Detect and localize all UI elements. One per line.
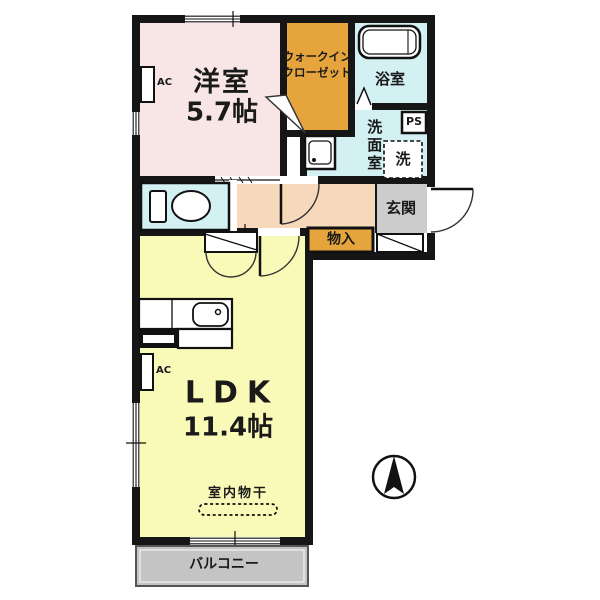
- kitchen-sink-icon: [193, 303, 228, 326]
- ldk-label: LDK: [185, 377, 279, 410]
- bedroom-label: 洋室: [193, 68, 251, 98]
- toilet-tank-icon: [150, 191, 166, 222]
- washbasin-icon: [305, 136, 335, 169]
- toilet-bowl-icon: [172, 191, 210, 221]
- washroom-door-opening: [280, 176, 318, 184]
- ldk-door-opening: [258, 228, 300, 236]
- bath-label: 浴室: [375, 71, 405, 88]
- floor-plan-drawing: [0, 0, 600, 600]
- wic-label-line1: ウォークイン: [283, 51, 352, 64]
- ac-unit-ldk: [141, 354, 153, 390]
- entry-door: [431, 189, 473, 232]
- washroom-label: 洗面室: [366, 119, 383, 173]
- ldk-size-label: 11.4帖: [183, 414, 273, 443]
- laundry-label: 洗: [395, 151, 410, 168]
- balcony-label: バルコニー: [189, 557, 259, 572]
- wic-label-line2: クローゼット: [283, 67, 352, 80]
- kitchen-counter: [139, 299, 232, 348]
- ac-label-bedroom: AC: [157, 77, 172, 88]
- north-compass-icon: [373, 456, 415, 498]
- pipe-space-label: PS: [406, 116, 422, 128]
- wall-ldk-right: [305, 228, 313, 545]
- floor-plan: 洋室 5.7帖 ウォークイン クローゼット 浴室 洗面室 洗 PS 玄関 物入 …: [0, 0, 600, 600]
- entrance-label: 玄関: [386, 200, 416, 217]
- toilet-room: [141, 183, 229, 230]
- indoor-drying-label: 室内物干: [208, 487, 268, 501]
- ac-label-ldk: AC: [156, 365, 171, 376]
- storage-label: 物入: [327, 232, 355, 247]
- ac-unit-bedroom: [141, 67, 154, 102]
- bathtub-icon: [359, 26, 420, 58]
- bedroom-size-label: 5.7帖: [186, 99, 258, 128]
- entry-door-opening: [427, 187, 435, 233]
- hallway-floor: [237, 184, 376, 228]
- entrance-step-box: [377, 234, 423, 252]
